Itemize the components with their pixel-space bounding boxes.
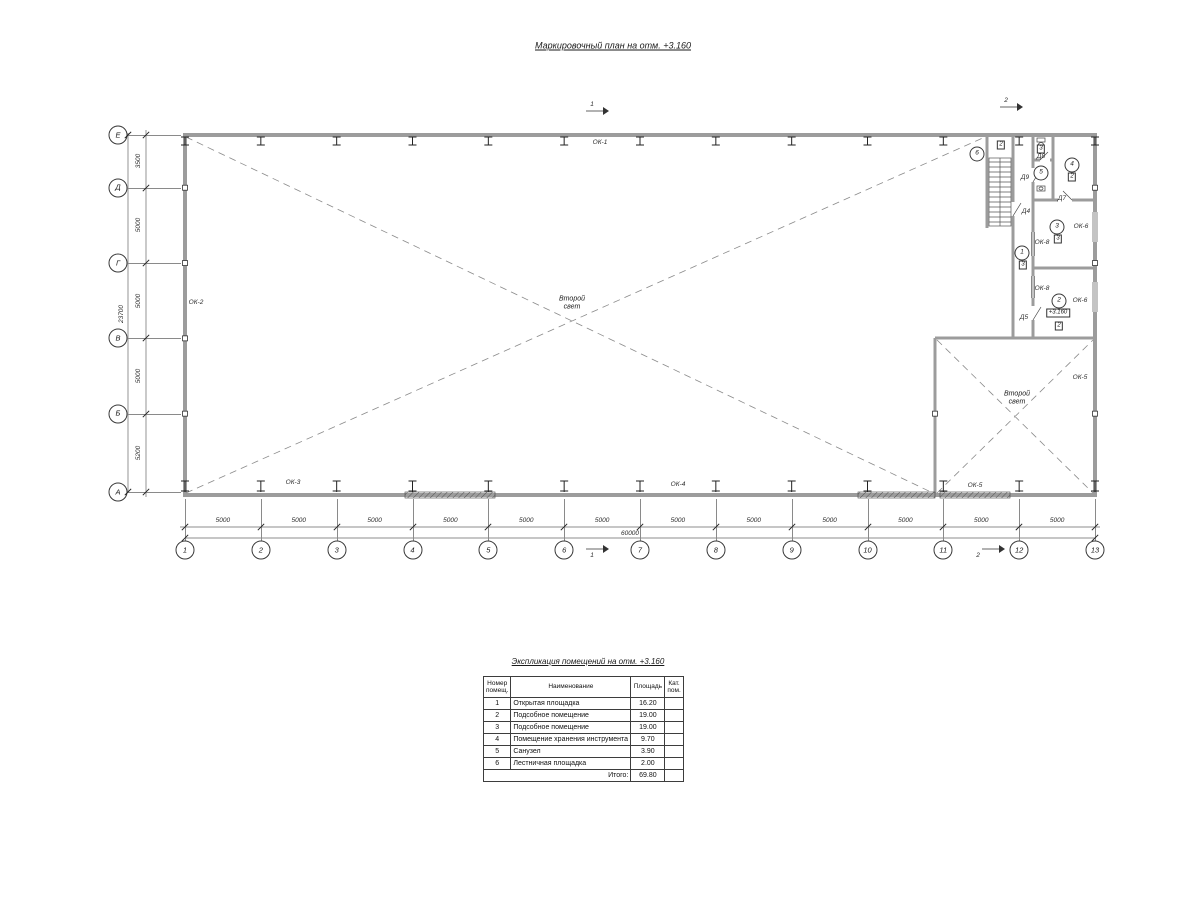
dim-label: 5000 [216,518,230,525]
column-circle: 4 [403,541,422,560]
column-circle: 11 [934,541,953,560]
section-arrows [586,103,1023,553]
explication-row: 1Открытая площадка16.20 [484,698,684,710]
room-cat-box-4: 2 [1068,173,1076,182]
dim-total-label: 60000 [621,531,639,538]
cell-num: 4 [484,734,511,746]
second-light-label: Второй [559,296,585,303]
cell-name: Подсобное помещение [511,722,631,734]
dim-label: 5000 [1050,518,1064,525]
extension-line [1019,499,1020,543]
column-circle: 13 [1086,541,1105,560]
room-cat-box-6: 2 [997,141,1005,150]
cell-area: 16.20 [631,698,665,710]
column-circle: 5 [479,541,498,560]
dim-label: 5200 [136,446,143,460]
interior-walls [935,135,1095,495]
extension-line [640,499,641,543]
total-cat-cell [665,770,683,782]
dim-label: 5000 [595,518,609,525]
second-light-label: свет [1009,399,1026,406]
room-cat-box-5: 3 [1037,145,1045,154]
cell-area: 19.00 [631,710,665,722]
explication-table: Номер помещ. Наименование Площадь Кат. п… [483,676,684,782]
dim-label: 5000 [822,518,836,525]
dim-label: 5000 [671,518,685,525]
dim-label: 5000 [136,369,143,383]
axis-circle: Б [109,404,128,423]
extension-line [128,188,181,189]
column-circle: 7 [631,541,650,560]
total-label: Итого: [484,770,631,782]
cell-name: Открытая площадка [511,698,631,710]
cell-name: Лестничная площадка [511,758,631,770]
stairs [989,158,1011,226]
axis-circle: Е [109,126,128,145]
cell-cat [665,722,683,734]
cell-num: 1 [484,698,511,710]
dim-label: 5000 [292,518,306,525]
level-mark-box: +3.160 [1046,309,1070,318]
cell-num: 3 [484,722,511,734]
window-tag-ok8: ОК-8 [1035,240,1050,247]
cell-num: 6 [484,758,511,770]
extension-line [261,499,262,543]
cell-cat [665,758,683,770]
explication-title: Экспликация помещений на отм. +3.160 [512,658,665,666]
room-circle-5: 5 [1034,166,1049,181]
dim-total-label: 23700 [119,304,126,322]
extension-line [716,499,717,543]
room-circle-3: 3 [1050,220,1065,235]
total-value: 69.80 [631,770,665,782]
column-circle: 12 [1010,541,1029,560]
explication-row: 6Лестничная площадка2.00 [484,758,684,770]
room-cat-box-3: 3 [1054,235,1062,244]
axis-circle: Д [109,178,128,197]
window-tag-ok6: ОК-6 [1074,224,1089,231]
explication-row: 5Санузел3.90 [484,746,684,758]
axis-circle: А [109,483,128,502]
column-circle: 2 [251,541,270,560]
second-light-label: Второй [1004,391,1030,398]
extension-line [792,499,793,543]
cell-cat [665,734,683,746]
window-tag-ok5: ОК-5 [968,483,983,490]
dim-label: 5000 [367,518,381,525]
extension-line [128,414,181,415]
cell-cat [665,746,683,758]
dim-label: 5000 [136,218,143,232]
window-tag-ok6: ОК-6 [1073,298,1088,305]
dim-label: 5000 [747,518,761,525]
column-circle: 3 [327,541,346,560]
dim-label: 3500 [136,154,143,168]
door-tag-d9: Д9 [1021,175,1029,182]
void-diagonals [186,137,1093,493]
window-tag-ok2: ОК-2 [189,300,204,307]
column-circle: 8 [706,541,725,560]
col-header-cat: Кат. пом. [665,677,683,698]
cell-area: 3.90 [631,746,665,758]
room-circle-4: 4 [1065,158,1080,173]
extension-line [128,492,181,493]
column-circle: 1 [176,541,195,560]
extension-line [128,263,181,264]
extension-line [868,499,869,543]
dim-label: 5000 [898,518,912,525]
door-tag-d5: Д5 [1020,315,1028,322]
section-mark-1-bottom: 1 [590,553,594,560]
axis-circle: В [109,329,128,348]
window-tag-ok8: ОК-8 [1035,286,1050,293]
extension-line [488,499,489,543]
explication-total-row: Итого: 69.80 [484,770,684,782]
extension-line [128,135,181,136]
dimension-lines [128,130,1100,538]
cell-name: Подсобное помещение [511,710,631,722]
dim-label: 5000 [974,518,988,525]
room-cat-box-1: 3 [1019,261,1027,270]
dim-label: 5000 [519,518,533,525]
dim-label: 5000 [136,293,143,307]
col-header-name: Наименование [511,677,631,698]
window-tag-ok4: ОК-4 [671,482,686,489]
col-header-area: Площадь [631,677,665,698]
dim-label: 5000 [443,518,457,525]
cell-num: 2 [484,710,511,722]
section-mark-2-bottom: 2 [976,553,980,560]
column-circle: 9 [782,541,801,560]
room-circle-1: 1 [1015,246,1030,261]
col-header-num: Номер помещ. [484,677,511,698]
wall-column-squares [183,185,1098,416]
window-tag-ok3: ОК-3 [286,480,301,487]
cell-cat [665,698,683,710]
extension-line [413,499,414,543]
section-mark-2-top: 2 [1004,98,1008,105]
extension-line [337,499,338,543]
door-tag-d7: Д7 [1058,196,1066,203]
drawing-sheet: { "drawing_title": "Маркировочный план н… [0,0,1200,900]
window-tag-ok1: ОК-1 [593,140,608,147]
explication-body: 1Открытая площадка16.202Подсобное помеще… [484,698,684,770]
column-circle: 6 [555,541,574,560]
cell-num: 5 [484,746,511,758]
room-circle-2: 2 [1052,294,1067,309]
cell-name: Помещение хранения инструмента [511,734,631,746]
door-tag-d8: Д8 [1037,154,1045,161]
explication-row: 2Подсобное помещение19.00 [484,710,684,722]
axis-circle: Г [109,254,128,273]
explication-row: 3Подсобное помещение19.00 [484,722,684,734]
cell-area: 19.00 [631,722,665,734]
door-tag-d4: Д4 [1022,209,1030,216]
floor-plan: Маркировочный план на отм. +3.160 1 1 2 … [0,0,1200,900]
outer-walls [185,135,1095,495]
drawing-title: Маркировочный план на отм. +3.160 [535,42,691,51]
room-circle-6: 6 [970,147,985,162]
window-tag-ok5: ОК-5 [1073,375,1088,382]
column-circle: 10 [858,541,877,560]
extension-line [943,499,944,543]
extension-line [128,338,181,339]
column-symbols [181,137,1099,492]
explication-row: 4Помещение хранения инструмента9.70 [484,734,684,746]
cell-name: Санузел [511,746,631,758]
cell-area: 9.70 [631,734,665,746]
section-mark-1-top: 1 [590,102,594,109]
explication-header-row: Номер помещ. Наименование Площадь Кат. п… [484,677,684,698]
cell-cat [665,710,683,722]
cell-area: 2.00 [631,758,665,770]
second-light-label: свет [564,304,581,311]
extension-line [564,499,565,543]
room-cat-box-2: 2 [1055,322,1063,331]
